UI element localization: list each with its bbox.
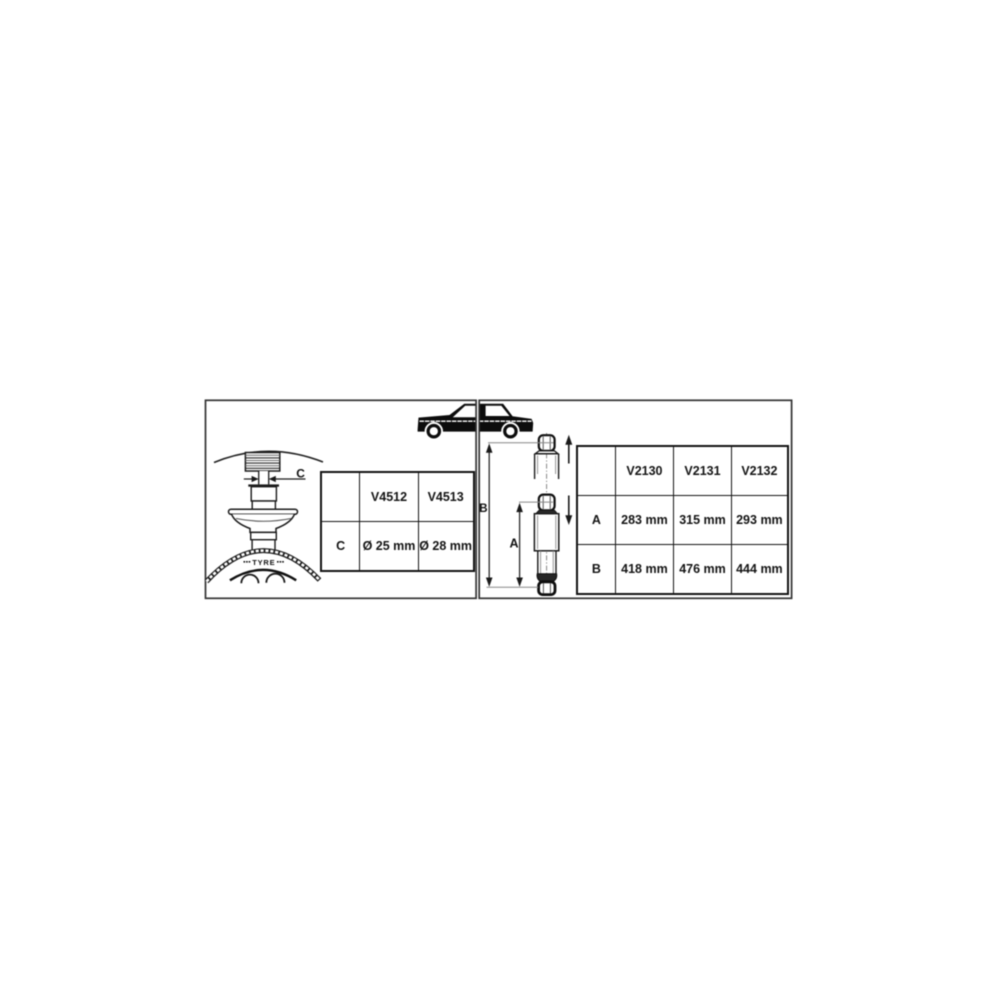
- svg-text:C: C: [296, 466, 305, 480]
- svg-text:B: B: [479, 503, 487, 515]
- svg-text:A: A: [509, 536, 518, 550]
- svg-text:TYRE: TYRE: [252, 558, 275, 567]
